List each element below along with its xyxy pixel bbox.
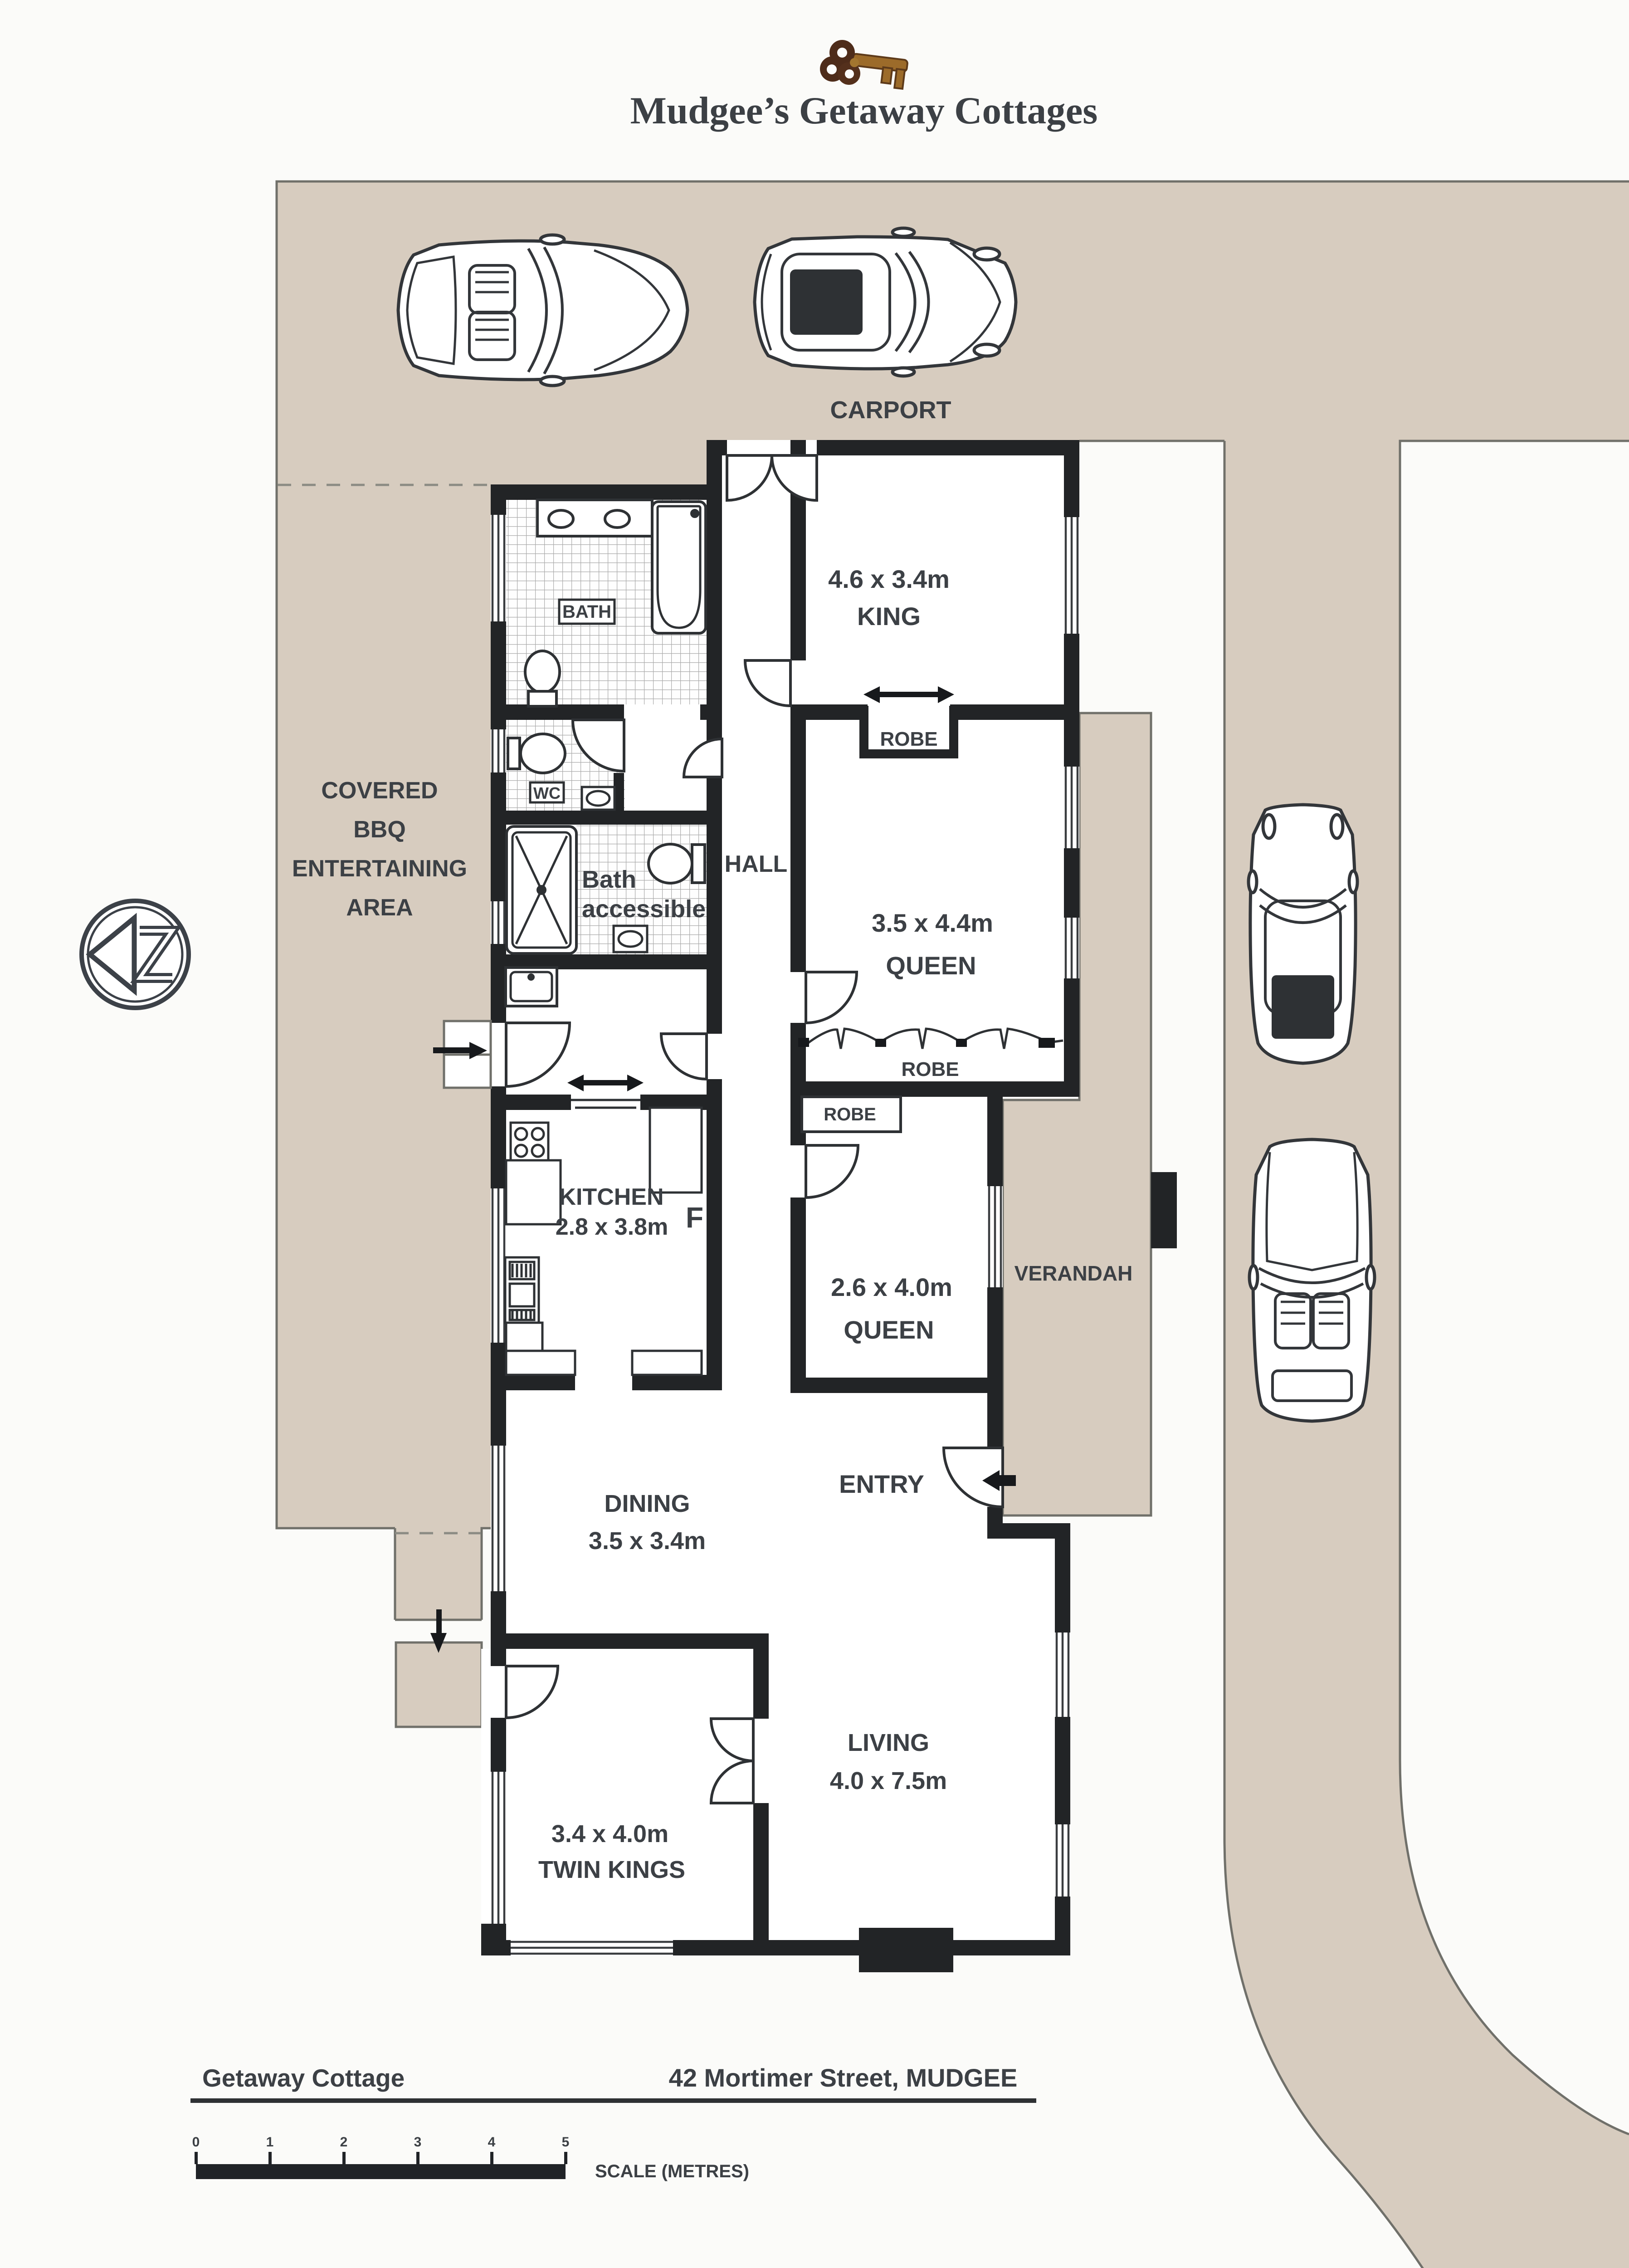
svg-text:ENTERTAINING: ENTERTAINING (292, 855, 467, 882)
svg-text:5: 5 (562, 2135, 570, 2150)
svg-text:BBQ: BBQ (353, 816, 406, 843)
svg-text:TWIN KINGS: TWIN KINGS (538, 1856, 685, 1883)
svg-text:0: 0 (192, 2135, 200, 2150)
svg-text:ROBE: ROBE (880, 728, 937, 750)
svg-text:ROBE: ROBE (901, 1058, 959, 1080)
svg-text:Mudgee’s Getaway Cottages: Mudgee’s Getaway Cottages (630, 89, 1098, 132)
svg-text:CARPORT: CARPORT (830, 396, 951, 424)
svg-text:F: F (686, 1201, 703, 1234)
svg-text:QUEEN: QUEEN (844, 1315, 934, 1344)
svg-text:DINING: DINING (605, 1490, 690, 1517)
svg-text:QUEEN: QUEEN (886, 951, 976, 980)
svg-text:accessible: accessible (582, 895, 706, 923)
svg-text:KING: KING (857, 602, 921, 631)
svg-text:2.8 x 3.8m: 2.8 x 3.8m (556, 1214, 668, 1240)
svg-text:WC: WC (533, 784, 561, 802)
svg-text:AREA: AREA (346, 894, 413, 921)
svg-text:4: 4 (488, 2135, 496, 2150)
svg-text:VERANDAH: VERANDAH (1014, 1261, 1133, 1285)
svg-text:ENTRY: ENTRY (839, 1470, 924, 1498)
svg-text:Bath: Bath (582, 866, 636, 893)
svg-text:BATH: BATH (562, 602, 611, 622)
svg-text:3.4 x 4.0m: 3.4 x 4.0m (551, 1820, 668, 1848)
svg-text:42 Mortimer Street, MUDGEE: 42 Mortimer Street, MUDGEE (669, 2063, 1018, 2092)
svg-text:COVERED: COVERED (321, 777, 438, 804)
svg-text:Getaway Cottage: Getaway Cottage (202, 2064, 405, 2092)
svg-text:3: 3 (414, 2135, 422, 2150)
svg-text:KITCHEN: KITCHEN (559, 1184, 663, 1210)
svg-text:4.6 x 3.4m: 4.6 x 3.4m (828, 565, 950, 593)
svg-text:1: 1 (266, 2135, 274, 2150)
svg-text:HALL: HALL (725, 851, 788, 877)
svg-text:2.6 x 4.0m: 2.6 x 4.0m (831, 1273, 952, 1301)
svg-text:4.0 x 7.5m: 4.0 x 7.5m (830, 1767, 947, 1794)
svg-text:ROBE: ROBE (824, 1105, 876, 1124)
svg-text:3.5 x 4.4m: 3.5 x 4.4m (872, 909, 993, 937)
svg-text:LIVING: LIVING (848, 1729, 929, 1756)
svg-text:SCALE (METRES): SCALE (METRES) (595, 2161, 749, 2181)
svg-text:2: 2 (340, 2135, 348, 2150)
svg-text:3.5 x 3.4m: 3.5 x 3.4m (589, 1527, 706, 1554)
